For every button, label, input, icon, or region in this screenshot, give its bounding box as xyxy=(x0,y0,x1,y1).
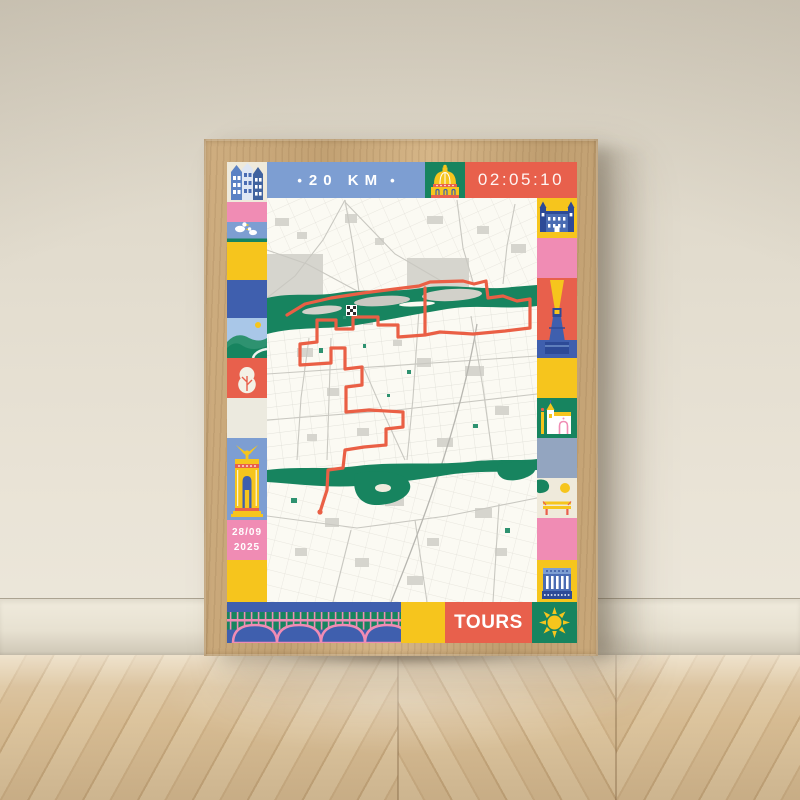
tile-plain-yellow xyxy=(537,358,577,398)
tile-cathedral xyxy=(537,398,577,438)
tile-columned-building xyxy=(537,560,577,602)
distance-label: •20 KM• xyxy=(290,172,401,189)
marathon-map-poster: •20 KM• 02:05:10 xyxy=(227,162,577,643)
poster-cast-shadow xyxy=(594,147,666,662)
tile-plain-yellow xyxy=(401,602,445,643)
tile-city-name: TOURS xyxy=(445,602,532,643)
sun-icon xyxy=(532,602,577,643)
chateau-icon xyxy=(537,198,577,238)
ducks-icon xyxy=(227,202,267,242)
tile-finish-time: 02:05:10 xyxy=(465,162,577,198)
cathedral-icon xyxy=(537,398,577,438)
city-map xyxy=(267,198,537,602)
tile-event-date: 28/09 2025 xyxy=(227,520,267,560)
tile-distance-banner: •20 KM• xyxy=(267,162,425,198)
room-scene: •20 KM• 02:05:10 xyxy=(0,0,800,800)
route-end-dot xyxy=(317,509,322,514)
bullet-icon: • xyxy=(390,173,395,188)
tile-plain-yellow xyxy=(227,242,267,280)
tile-plain-yellow xyxy=(227,560,267,602)
fountain-gate-icon xyxy=(227,438,267,520)
tile-plain-cream xyxy=(227,398,267,438)
finish-flag-icon xyxy=(346,305,357,316)
columned-building-icon xyxy=(537,560,577,602)
bridge-icon xyxy=(227,602,401,643)
city-name-label: TOURS xyxy=(454,612,523,634)
tile-park-bench xyxy=(537,478,577,518)
lighthouse-icon xyxy=(537,278,577,358)
map-canvas xyxy=(267,198,537,602)
tile-ducks xyxy=(227,202,267,242)
tile-sun xyxy=(532,602,577,643)
tile-plain-slate xyxy=(537,438,577,478)
tile-arched-bridge xyxy=(227,602,401,643)
tile-chateau xyxy=(537,198,577,238)
event-date-label: 28/09 2025 xyxy=(232,525,262,556)
tile-riverbank xyxy=(227,318,267,358)
poster-frame: •20 KM• 02:05:10 xyxy=(204,139,598,656)
tile-plain-pink xyxy=(537,238,577,278)
tile-houses xyxy=(227,162,267,202)
floor-sheen xyxy=(0,655,800,800)
tile-plain-navy xyxy=(227,280,267,318)
tile-plain-pink xyxy=(537,518,577,560)
tile-lighthouse xyxy=(537,278,577,358)
dome-icon xyxy=(425,162,465,198)
tile-tree xyxy=(227,358,267,398)
houses-icon xyxy=(227,162,267,202)
riverbank-icon xyxy=(227,318,267,358)
tile-fountain-gate xyxy=(227,438,267,520)
tile-dome xyxy=(425,162,465,198)
tree-icon xyxy=(227,358,267,398)
park-bench-icon xyxy=(537,478,577,518)
finish-time-label: 02:05:10 xyxy=(478,170,564,190)
bullet-icon: • xyxy=(297,173,302,188)
